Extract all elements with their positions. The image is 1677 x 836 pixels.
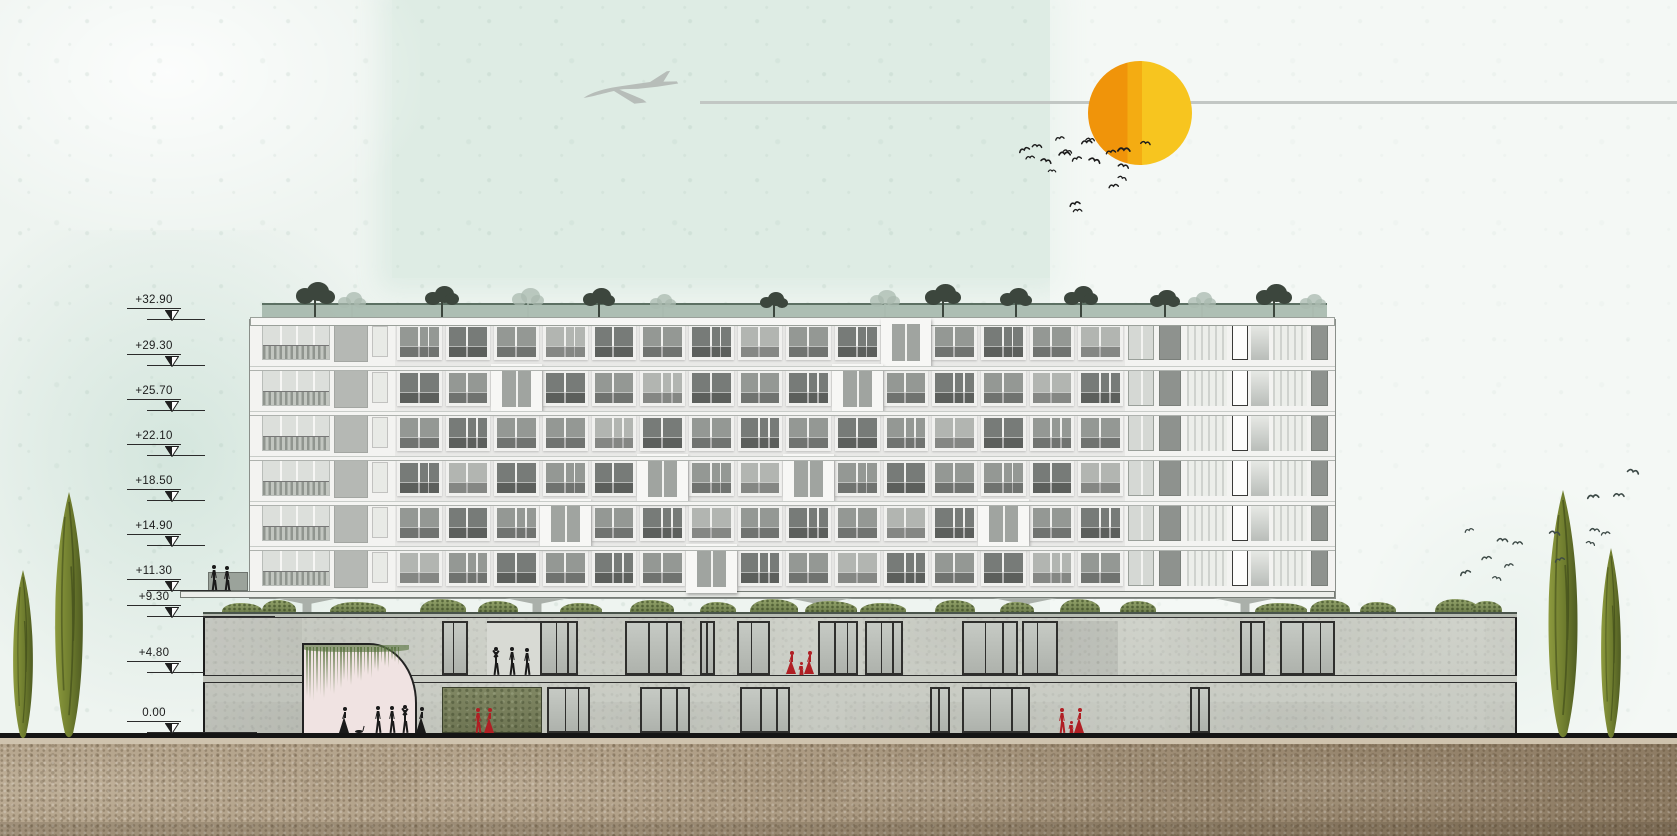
window-railing-band — [546, 392, 585, 403]
window-cell — [932, 550, 977, 586]
glass-mullion — [834, 623, 836, 673]
right-wing-dark-pane — [1311, 460, 1328, 496]
window-railing-band — [984, 392, 1023, 403]
right-wing-dark-pane — [1159, 324, 1181, 360]
box-window-pane — [502, 370, 530, 407]
window-railing-band — [1033, 346, 1072, 357]
roof-tree-dark — [1256, 284, 1293, 318]
person-arm — [478, 713, 481, 721]
window-cell — [446, 550, 491, 586]
window-railing-band — [887, 527, 926, 538]
window-railing-band — [497, 346, 536, 357]
podium-glass-module — [1280, 621, 1335, 675]
window-railing-band — [692, 346, 731, 357]
window-cell — [738, 324, 783, 360]
person-figure — [221, 566, 233, 591]
window-cell — [592, 550, 637, 586]
balcony-railing — [263, 391, 329, 405]
window-railing-band — [838, 482, 877, 493]
bird-icon — [1586, 486, 1600, 495]
person-figure — [1074, 708, 1086, 733]
left-wing-small-pane — [372, 326, 388, 357]
window-cell — [738, 550, 783, 586]
tree-trunk — [314, 300, 316, 318]
level-triangle-icon — [165, 579, 179, 590]
bird-icon — [1117, 140, 1131, 149]
person-head — [525, 648, 529, 652]
window-cell — [494, 505, 539, 541]
window-railing-band — [741, 437, 780, 448]
window-mullion — [905, 324, 907, 361]
podium-glass-module — [1190, 687, 1210, 733]
window-cell — [494, 324, 539, 360]
right-wing-pane-pair — [1128, 505, 1154, 541]
tower-base-slab — [180, 591, 1335, 598]
tree-canopy-blob — [776, 298, 788, 308]
bird-icon — [1599, 522, 1610, 530]
window-railing-band — [741, 346, 780, 357]
window-cell — [446, 370, 491, 406]
window-cell — [397, 324, 442, 360]
level-label: +32.90 — [118, 294, 190, 307]
window-cell — [592, 370, 637, 406]
window-cell — [494, 415, 539, 451]
window-cell — [1030, 324, 1075, 360]
glass-mullion — [1302, 623, 1304, 673]
window-railing-band — [595, 346, 634, 357]
window-cell — [1078, 550, 1123, 586]
podium-glass-module — [547, 687, 590, 733]
right-wing-pane-pair — [1128, 370, 1154, 406]
window-railing-band — [789, 346, 828, 357]
left-wing-glass-strip — [262, 550, 330, 586]
level-triangle-icon — [165, 534, 179, 545]
left-wing-shutter-panel — [334, 413, 368, 453]
vine-strand — [330, 647, 332, 692]
tree-canopy-blob — [887, 296, 900, 307]
right-wing-striped-glazing — [1273, 460, 1307, 496]
window-cell — [884, 505, 929, 541]
bird-icon — [1107, 175, 1119, 183]
right-wing-dark-pane — [1311, 550, 1328, 586]
window-railing-band — [1033, 437, 1072, 448]
vine-strand — [343, 647, 345, 680]
left-wing-shutter-panel — [334, 322, 368, 362]
window-cell — [1030, 460, 1075, 496]
window-cell — [592, 415, 637, 451]
glass-mullion — [985, 623, 987, 673]
cypress-tree — [48, 492, 90, 740]
vine-strand — [354, 647, 356, 676]
right-wing-pane-pair — [1128, 415, 1154, 451]
glass-mullion — [776, 689, 778, 731]
window-railing-band — [1033, 527, 1072, 538]
window-mullion — [1141, 506, 1143, 540]
left-wing-glass-strip — [262, 460, 330, 496]
window-cell — [689, 505, 734, 541]
person-leg — [496, 663, 499, 675]
window-railing-band — [935, 392, 974, 403]
right-wing-dark-pane — [1159, 370, 1181, 406]
level-label: +29.30 — [118, 340, 190, 353]
right-wing-striped-glazing — [1187, 415, 1227, 451]
vine-strand — [340, 647, 342, 688]
box-window-pane — [794, 460, 822, 497]
bird-icon — [1501, 554, 1512, 562]
glass-mullion — [892, 623, 894, 673]
vine-strand — [323, 647, 325, 698]
glass-mullion — [760, 689, 762, 731]
person-head — [212, 565, 216, 569]
right-wing-gradient-pane — [1251, 324, 1269, 360]
vine-strand — [367, 647, 369, 675]
bird-icon — [1141, 132, 1153, 140]
roof-tree-dark — [583, 288, 616, 318]
window-cell — [835, 415, 880, 451]
vine-strand — [374, 647, 376, 669]
left-wing-glass-strip — [262, 415, 330, 451]
person-head — [488, 708, 492, 712]
right-wing-striped-glazing — [1273, 370, 1307, 406]
window-cell — [397, 370, 442, 406]
tower-roof-slab — [250, 317, 1335, 326]
window-cell — [835, 460, 880, 496]
bird-icon — [1497, 530, 1509, 538]
right-wing-pane-pair — [1128, 460, 1154, 496]
podium-glass-module — [818, 621, 858, 675]
glass-mullion — [578, 689, 580, 731]
level-line — [147, 732, 257, 734]
window-railing-band — [1033, 572, 1072, 583]
tree-trunk — [527, 303, 529, 318]
right-wing-open-window — [1232, 460, 1248, 496]
window-railing-band — [1081, 346, 1120, 357]
level-triangle-icon — [165, 489, 179, 500]
glass-mullion — [556, 623, 558, 673]
person-figure — [416, 707, 428, 733]
vine-strand — [384, 647, 386, 666]
left-wing-glass-strip — [262, 324, 330, 360]
bird-icon — [1032, 136, 1043, 143]
window-railing-band — [546, 482, 585, 493]
person-head — [225, 566, 229, 570]
shrub — [560, 603, 602, 612]
roof-tree-dark — [760, 292, 789, 318]
cypress-tree — [8, 570, 38, 740]
window-railing-band — [400, 572, 439, 583]
glass-mullion — [1002, 623, 1004, 673]
window-cell — [689, 370, 734, 406]
right-wing-gradient-pane — [1251, 550, 1269, 586]
vine-strand — [320, 647, 322, 695]
facade-white-box — [540, 499, 591, 548]
bird-icon — [1549, 522, 1562, 531]
tree-canopy-blob — [1167, 296, 1180, 307]
right-wing-pane-pair — [1128, 550, 1154, 586]
right-wing-striped-glazing — [1187, 370, 1227, 406]
window-cell — [1078, 324, 1123, 360]
window-railing-band — [887, 437, 926, 448]
window-railing-band — [741, 482, 780, 493]
window-railing-band — [887, 392, 926, 403]
person-figure — [386, 706, 398, 733]
podium-glass-module — [640, 687, 690, 733]
window-cell — [494, 460, 539, 496]
window-railing-band — [1081, 392, 1120, 403]
window-mullion — [857, 370, 859, 407]
window-cell — [1078, 415, 1123, 451]
person-head — [1060, 708, 1064, 712]
window-cell — [932, 324, 977, 360]
window-cell — [446, 324, 491, 360]
left-wing-small-pane — [372, 372, 388, 403]
window-railing-band — [935, 572, 974, 583]
right-wing-open-window — [1232, 505, 1248, 541]
person-skirt — [484, 718, 494, 733]
vine-strand — [316, 647, 318, 693]
window-cell — [1030, 415, 1075, 451]
floor-slab-line — [250, 456, 1335, 461]
right-wing-gradient-pane — [1251, 460, 1269, 496]
tree-canopy-blob — [318, 290, 334, 304]
person-head — [808, 651, 812, 655]
window-cell — [738, 505, 783, 541]
window-railing-band — [400, 392, 439, 403]
window-cell — [786, 415, 831, 451]
roof-tree-ghost — [870, 290, 901, 318]
window-cell — [494, 550, 539, 586]
window-cell — [592, 460, 637, 496]
window-cell — [835, 505, 880, 541]
window-cell — [981, 550, 1026, 586]
right-wing-dark-pane — [1159, 550, 1181, 586]
window-cell — [1078, 460, 1123, 496]
window-railing-band — [1081, 572, 1120, 583]
window-cell — [786, 550, 831, 586]
roof-tree-dark — [1064, 286, 1099, 318]
window-cell — [981, 415, 1026, 451]
vine-strand — [337, 647, 339, 686]
bird-icon — [1086, 128, 1097, 135]
glass-mullion — [751, 623, 753, 673]
level-triangle-icon — [165, 661, 179, 672]
vine-strand — [350, 647, 352, 685]
window-cell — [446, 505, 491, 541]
roof-tree-dark — [1150, 290, 1181, 318]
facade-white-box — [686, 544, 737, 593]
podium-glass-module — [625, 621, 682, 675]
level-triangle-icon — [165, 308, 179, 319]
person-arm — [1062, 713, 1065, 721]
level-label: +11.30 — [118, 565, 190, 578]
left-wing-shutter-panel — [334, 503, 368, 543]
glass-mullion — [938, 689, 940, 731]
bird-icon — [1103, 141, 1115, 150]
right-wing-striped-glazing — [1187, 324, 1227, 360]
window-railing-band — [692, 392, 731, 403]
window-railing-band — [741, 572, 780, 583]
window-railing-band — [984, 572, 1023, 583]
window-railing-band — [838, 437, 877, 448]
window-mullion — [1141, 461, 1143, 495]
window-cell — [786, 324, 831, 360]
facade-white-box — [491, 364, 542, 413]
window-cell — [884, 415, 929, 451]
window-cell — [932, 370, 977, 406]
bird-icon — [1072, 200, 1082, 207]
window-cell — [640, 550, 685, 586]
right-wing-striped-glazing — [1273, 505, 1307, 541]
person-skirt — [416, 717, 426, 733]
window-railing-band — [449, 346, 488, 357]
floor-slab-line — [250, 501, 1335, 506]
vine-strand — [394, 647, 396, 662]
window-cell — [592, 324, 637, 360]
podium-glass-module — [737, 621, 770, 675]
window-railing-band — [1081, 527, 1120, 538]
person-head — [420, 707, 424, 711]
right-wing-gradient-pane — [1251, 415, 1269, 451]
vine-strand — [371, 647, 373, 678]
window-cell — [640, 324, 685, 360]
tree-canopy-blob — [445, 293, 459, 305]
person-figure — [490, 647, 502, 675]
person-skirt — [339, 717, 349, 733]
tree-canopy-blob — [354, 298, 366, 308]
window-cell — [397, 460, 442, 496]
left-wing-small-pane — [372, 507, 388, 538]
window-cell — [981, 370, 1026, 406]
right-wing-open-window — [1232, 370, 1248, 406]
tree-canopy-blob — [1315, 299, 1326, 308]
window-mullion — [565, 505, 567, 542]
window-cell — [689, 460, 734, 496]
left-wing-small-pane — [372, 462, 388, 493]
podium-glass-module — [930, 687, 950, 733]
tree-trunk — [598, 303, 600, 318]
window-railing-band — [789, 392, 828, 403]
vine-strand — [313, 647, 315, 701]
window-cell — [1030, 505, 1075, 541]
window-railing-band — [546, 437, 585, 448]
right-wing-gradient-pane — [1251, 505, 1269, 541]
window-cell — [543, 415, 588, 451]
window-railing-band — [643, 572, 682, 583]
glass-mullion — [567, 623, 569, 673]
roof-tree-ghost — [1300, 294, 1326, 318]
person-leg — [478, 722, 481, 733]
window-mullion — [1141, 551, 1143, 585]
person-leg — [512, 663, 515, 675]
person-figure — [372, 706, 384, 733]
cat-tail — [362, 726, 365, 731]
window-cell — [1078, 370, 1123, 406]
roof-tree-dark — [296, 282, 336, 318]
person-arm — [214, 570, 217, 578]
window-cell — [884, 550, 929, 586]
window-cell — [884, 460, 929, 496]
left-wing-small-pane — [372, 417, 388, 448]
window-cell — [786, 505, 831, 541]
shrub — [860, 603, 906, 612]
window-railing-band — [595, 572, 634, 583]
glass-mullion — [676, 689, 678, 731]
window-railing-band — [838, 527, 877, 538]
right-wing-open-window — [1232, 415, 1248, 451]
bird-icon — [1512, 533, 1523, 540]
window-railing-band — [497, 482, 536, 493]
window-cell — [835, 550, 880, 586]
window-cell — [543, 460, 588, 496]
person-head — [790, 651, 794, 655]
shrub — [222, 603, 262, 612]
window-railing-band — [789, 572, 828, 583]
bird-icon — [1461, 519, 1472, 528]
balcony-railing — [263, 481, 329, 495]
cypress-tree — [1541, 490, 1585, 740]
window-mullion — [1141, 371, 1143, 405]
window-railing-band — [692, 527, 731, 538]
level-label: 0.00 — [118, 707, 190, 720]
glass-mullion — [990, 689, 992, 731]
podium-glass-module — [1240, 621, 1265, 675]
podium-left-wall-tint — [203, 618, 302, 733]
person-skirt — [804, 660, 814, 674]
bird-icon — [1064, 140, 1075, 148]
window-cell — [640, 370, 685, 406]
bird-icon — [1613, 485, 1625, 492]
window-cell — [835, 324, 880, 360]
floor-slab-line — [250, 411, 1335, 416]
tree-canopy-blob — [665, 299, 676, 308]
elevation-drawing: +32.90+29.30+25.70+22.10+18.50+14.90+11.… — [0, 0, 1677, 836]
window-railing-band — [789, 437, 828, 448]
balcony-railing — [263, 571, 329, 585]
person-leg — [405, 721, 408, 733]
podium-glass-module — [700, 621, 715, 675]
box-window-pane — [843, 370, 871, 407]
tree-trunk — [1273, 301, 1275, 318]
facade-white-box — [978, 499, 1029, 548]
left-wing-glass-strip — [262, 370, 330, 406]
vine-strand — [381, 647, 383, 663]
person-head — [390, 706, 394, 710]
window-railing-band — [741, 392, 780, 403]
podium-glass-module — [540, 621, 578, 675]
vine-strand — [364, 647, 366, 673]
level-label: +18.50 — [118, 475, 190, 488]
roof-tree-dark — [1000, 288, 1033, 318]
tree-canopy-blob — [602, 295, 616, 306]
window-railing-band — [497, 527, 536, 538]
box-window-pane — [892, 324, 920, 361]
vine-strand — [360, 647, 362, 681]
level-triangle-icon — [165, 399, 179, 410]
right-wing-striped-glazing — [1187, 505, 1227, 541]
tree-trunk — [1080, 302, 1082, 318]
window-railing-band — [692, 437, 731, 448]
tree-canopy-blob — [946, 291, 961, 304]
window-mullion — [516, 370, 518, 407]
person-leg — [392, 721, 395, 733]
tree-canopy-blob — [531, 295, 545, 306]
vine-strand — [377, 647, 379, 672]
bird-icon — [1052, 127, 1063, 135]
window-railing-band — [935, 437, 974, 448]
left-wing-shutter-panel — [334, 368, 368, 408]
facade-white-box — [832, 364, 883, 413]
tree-trunk — [1015, 303, 1017, 318]
